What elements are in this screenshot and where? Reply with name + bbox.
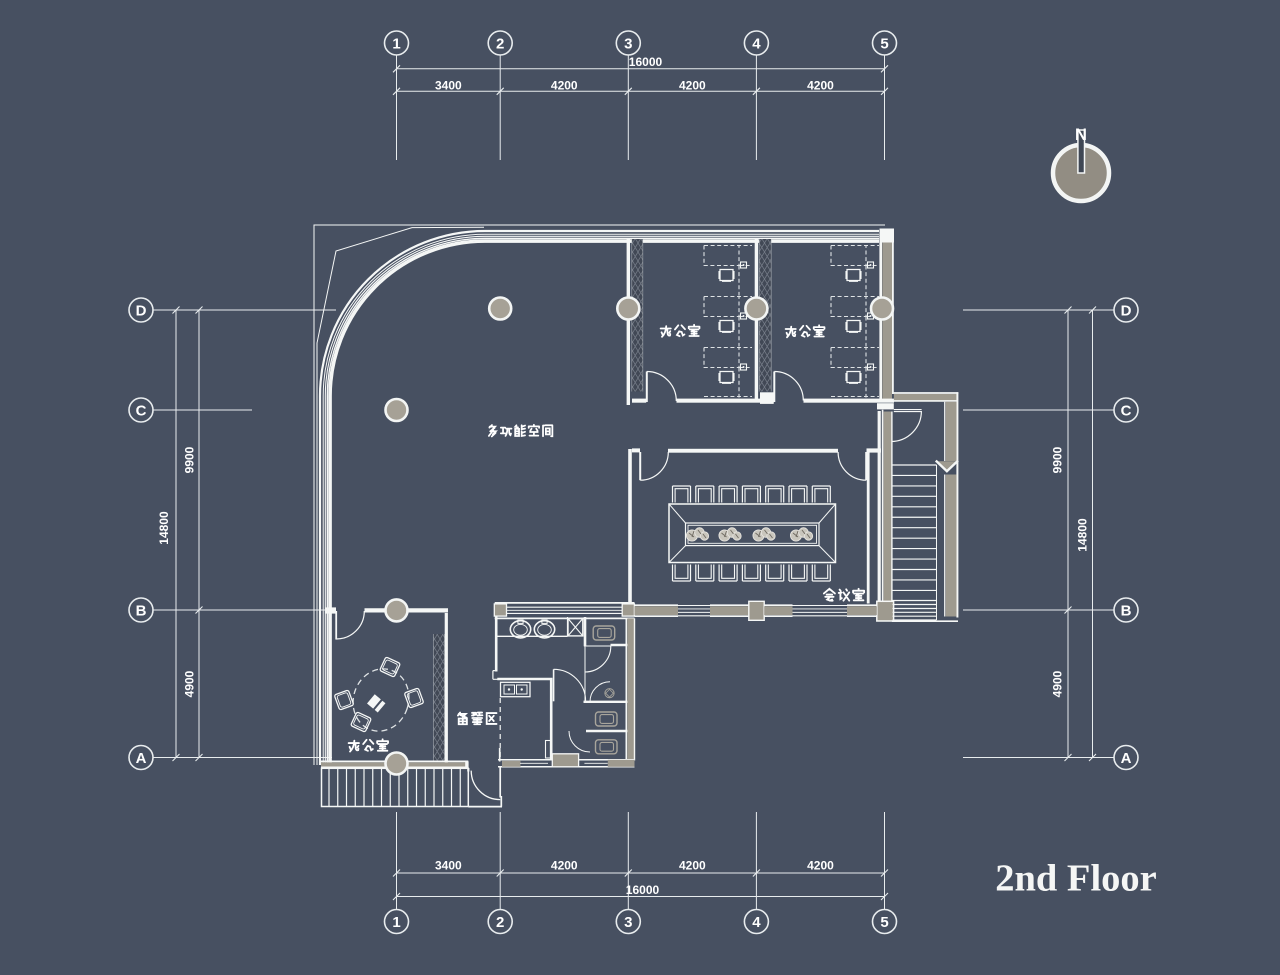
svg-text:A: A xyxy=(1121,750,1132,767)
svg-text:B: B xyxy=(136,603,147,620)
svg-text:2: 2 xyxy=(496,36,504,53)
svg-text:5: 5 xyxy=(880,914,888,931)
svg-text:4200: 4200 xyxy=(679,859,706,873)
svg-text:9900: 9900 xyxy=(1051,446,1065,473)
svg-text:C: C xyxy=(1121,403,1132,420)
svg-text:A: A xyxy=(136,750,147,767)
svg-text:2: 2 xyxy=(496,914,504,931)
svg-text:N: N xyxy=(1075,126,1087,144)
svg-text:14800: 14800 xyxy=(157,511,171,545)
svg-text:1: 1 xyxy=(392,914,400,931)
svg-text:4200: 4200 xyxy=(679,79,706,93)
svg-text:5: 5 xyxy=(880,36,888,53)
svg-text:14800: 14800 xyxy=(1076,518,1090,552)
svg-text:4: 4 xyxy=(752,914,761,931)
svg-text:3: 3 xyxy=(624,914,632,931)
svg-text:3: 3 xyxy=(624,36,632,53)
svg-text:9900: 9900 xyxy=(183,446,197,473)
svg-text:4900: 4900 xyxy=(183,670,197,697)
svg-text:4200: 4200 xyxy=(551,79,578,93)
svg-text:3400: 3400 xyxy=(435,79,462,93)
svg-text:4200: 4200 xyxy=(807,79,834,93)
svg-text:B: B xyxy=(1121,603,1132,620)
svg-text:4200: 4200 xyxy=(807,859,834,873)
svg-text:4900: 4900 xyxy=(1051,670,1065,697)
svg-text:4: 4 xyxy=(752,36,761,53)
svg-text:D: D xyxy=(136,303,147,320)
svg-text:C: C xyxy=(136,403,147,420)
svg-text:4200: 4200 xyxy=(551,859,578,873)
svg-text:16000: 16000 xyxy=(629,55,663,69)
svg-text:1: 1 xyxy=(392,36,400,53)
svg-text:2nd Floor: 2nd Floor xyxy=(995,858,1157,900)
svg-text:D: D xyxy=(1121,303,1132,320)
svg-text:3400: 3400 xyxy=(435,859,462,873)
svg-text:16000: 16000 xyxy=(626,883,660,897)
